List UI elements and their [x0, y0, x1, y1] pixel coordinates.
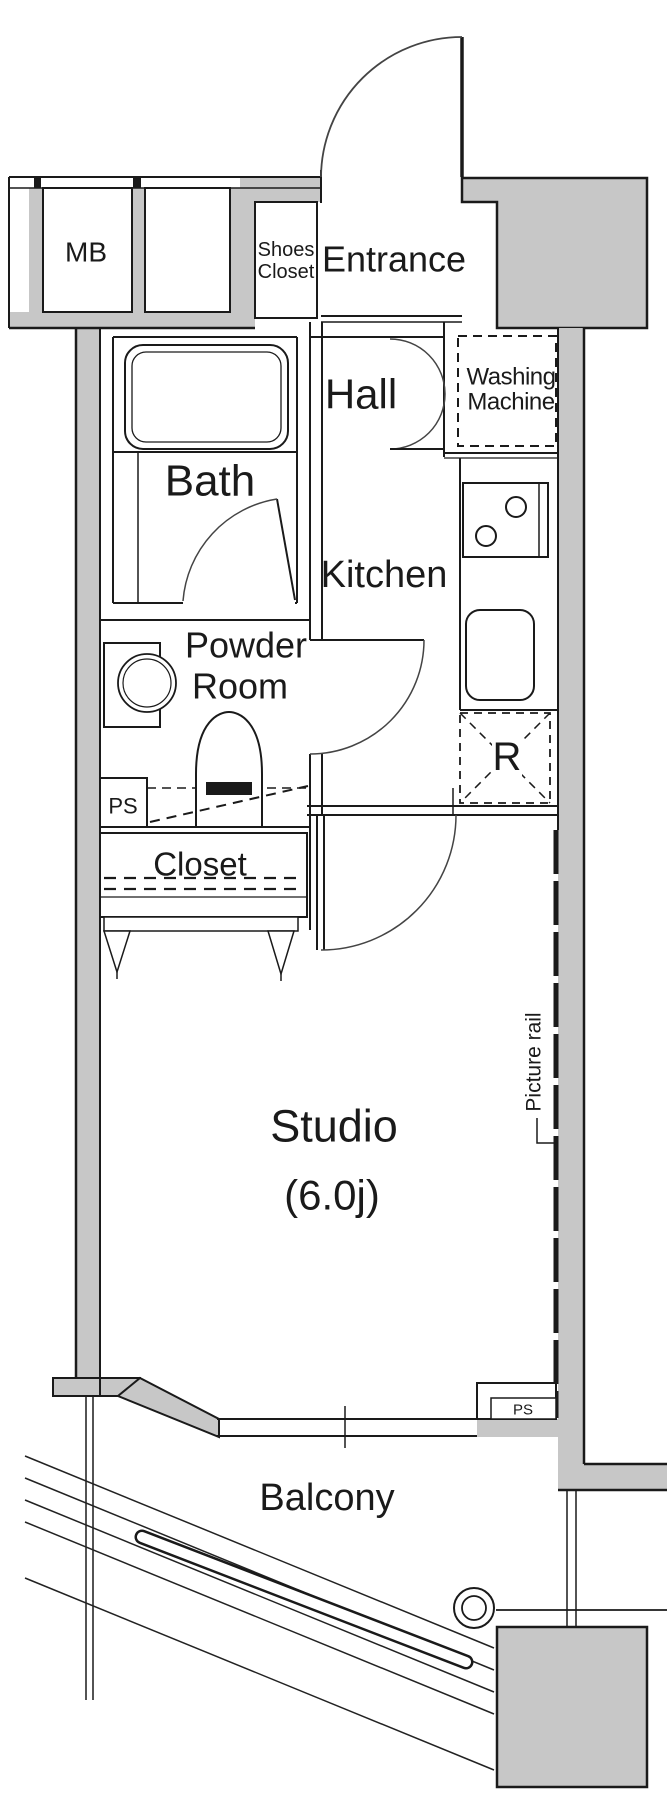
balcony-drain-inner: [462, 1596, 486, 1620]
utility-box: [145, 188, 230, 312]
shoes-closet-label-1: Shoes: [258, 239, 315, 261]
closet-label: Closet: [153, 846, 247, 883]
toilet-tank: [206, 782, 252, 795]
wall-east-lower: [558, 1437, 584, 1490]
entrance-door: [310, 37, 462, 337]
powder-door-arc: [310, 640, 424, 754]
floor-plan: MB Shoes Closet Entrance Hall Washing Ma…: [0, 0, 667, 1797]
pipe-space-powder-label: PS: [108, 794, 137, 819]
balcony-hatch-5: [25, 1578, 494, 1770]
wall-mb-divider-mid: [132, 188, 145, 312]
powder-room-label-1: Powder: [185, 625, 307, 666]
studio-window: [217, 1383, 556, 1448]
floor-plan-drawing: MB Shoes Closet Entrance Hall Washing Ma…: [0, 0, 667, 1797]
wall-diagonal-bay: [118, 1378, 219, 1437]
stove: [463, 483, 548, 557]
studio-entry: [307, 788, 558, 950]
hall-label: Hall: [325, 371, 397, 418]
powder-room-label-2: Room: [192, 666, 288, 707]
wall-southeast-stub: [584, 1464, 667, 1490]
wall-mb-divider-left: [29, 188, 43, 312]
hanger-symbol-left: [104, 931, 130, 972]
corridor-tick-1: [34, 177, 41, 188]
kitchen-sink: [466, 610, 534, 700]
bath-label: Bath: [165, 457, 256, 506]
wall-mb-divider-right: [230, 188, 255, 322]
meter-box-label: MB: [65, 237, 107, 268]
studio-label: Studio: [270, 1101, 398, 1152]
entrance-door-arc: [321, 37, 462, 177]
east-wall-lines: [537, 328, 667, 1490]
balcony-gutter-fill: [142, 1537, 466, 1662]
washing-machine-label-2: Machine: [467, 389, 554, 416]
closet-hanger-rail: [104, 917, 298, 931]
wall-entrance-block: [462, 178, 647, 328]
picture-rail-pointer: [537, 1118, 556, 1143]
shoes-closet-label-2: Closet: [258, 261, 315, 283]
balcony-hatch-4: [25, 1522, 494, 1714]
bath-door-arc: [183, 499, 277, 601]
wash-basin: [118, 654, 176, 712]
balcony-label: Balcony: [259, 1477, 394, 1519]
wall-window-right: [477, 1419, 584, 1437]
wall-east: [558, 328, 584, 1420]
wall-mb-bottom-band: [9, 312, 255, 328]
studio-door-arc: [321, 815, 456, 950]
stove-burner-1: [506, 497, 526, 517]
washing-machine-label-1: Washing: [467, 364, 556, 391]
balcony-pillar-block: [497, 1627, 647, 1787]
kitchen-label: Kitchen: [321, 554, 448, 596]
studio-size-label: (6.0j): [284, 1172, 380, 1219]
corridor-tick-2: [133, 177, 141, 188]
washer-folding-door-arc-top: [390, 339, 445, 394]
bath-door-leaf: [277, 499, 295, 600]
hanger-symbol-right: [268, 931, 294, 974]
picture-rail-label: Picture rail: [523, 1012, 546, 1111]
pipe-space-window-label: PS: [513, 1402, 533, 1419]
bathtub: [125, 345, 288, 449]
entrance-label: Entrance: [322, 239, 466, 280]
stove-burner-2: [476, 526, 496, 546]
refrigerator-label: R: [493, 735, 522, 779]
wall-west: [76, 328, 100, 1396]
balcony-hatch-3: [25, 1500, 494, 1692]
washer-folding-door-arc-bottom: [390, 394, 445, 449]
